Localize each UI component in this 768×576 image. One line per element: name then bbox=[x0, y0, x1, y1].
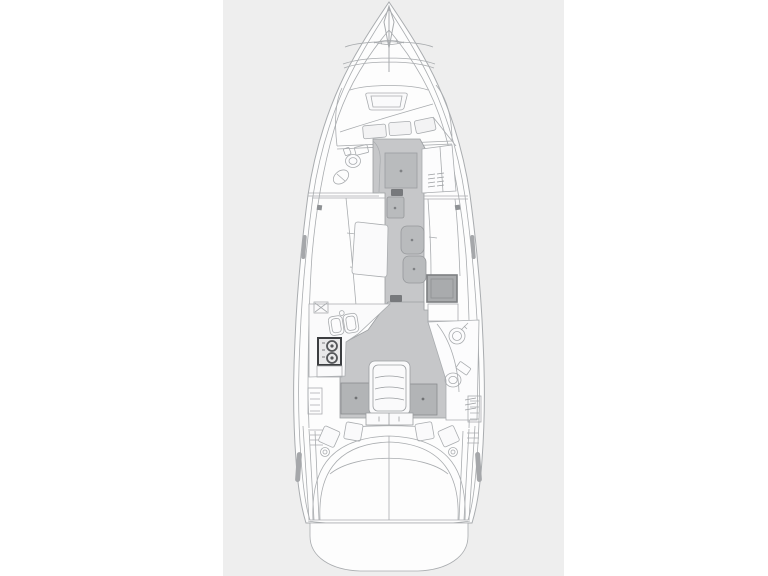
pillow bbox=[363, 124, 387, 139]
hatch-dot bbox=[400, 170, 403, 173]
yacht-layout-diagram bbox=[0, 0, 768, 576]
module-dot bbox=[394, 207, 397, 210]
pillow bbox=[389, 121, 412, 136]
steps-base bbox=[366, 413, 413, 425]
stern bbox=[308, 521, 470, 571]
module-dot bbox=[413, 268, 416, 271]
entry-dot bbox=[422, 398, 425, 401]
screenshot-canvas bbox=[0, 0, 768, 576]
burner-top-center bbox=[330, 344, 333, 347]
burner-bottom-center bbox=[330, 356, 333, 359]
chainplate-starboard bbox=[455, 205, 461, 211]
door-threshold-galley bbox=[390, 295, 402, 302]
salon-table bbox=[352, 222, 388, 277]
cushion bbox=[344, 422, 364, 442]
chainplate-port bbox=[317, 205, 323, 211]
toilet-bowl bbox=[346, 155, 361, 168]
entry-dot bbox=[355, 397, 358, 400]
door-threshold-forward bbox=[391, 189, 403, 196]
companionway-steps bbox=[366, 361, 413, 425]
cushion bbox=[415, 422, 435, 442]
steps-outer bbox=[369, 361, 410, 415]
module-dot bbox=[411, 239, 414, 242]
stove bbox=[318, 338, 341, 365]
swim-platform bbox=[310, 523, 468, 571]
